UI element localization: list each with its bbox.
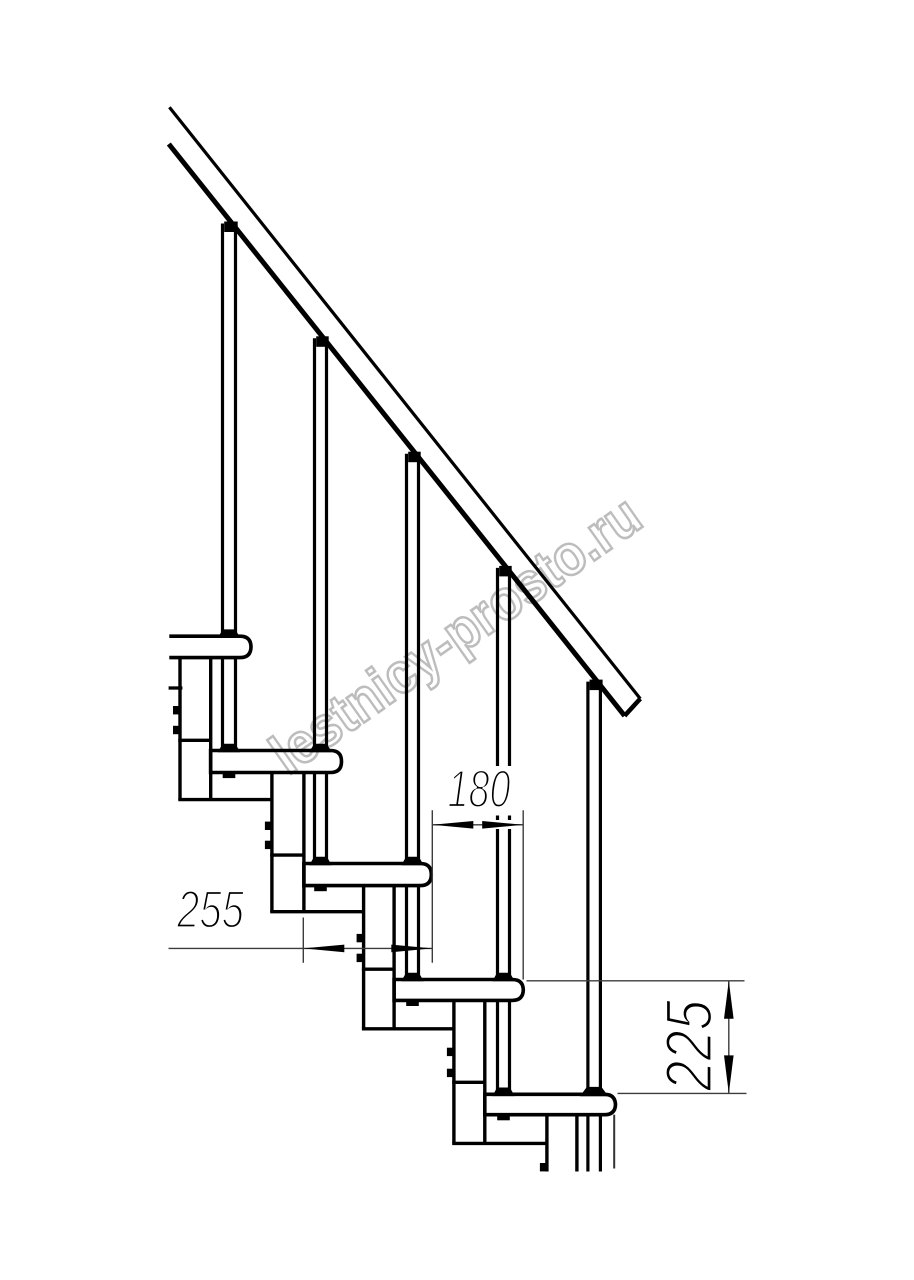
svg-text:255: 255 [176, 881, 244, 940]
svg-text:180: 180 [448, 760, 511, 819]
svg-text:lestnicy-prosto.ru: lestnicy-prosto.ru [259, 483, 653, 787]
svg-text:225: 225 [652, 1000, 726, 1092]
